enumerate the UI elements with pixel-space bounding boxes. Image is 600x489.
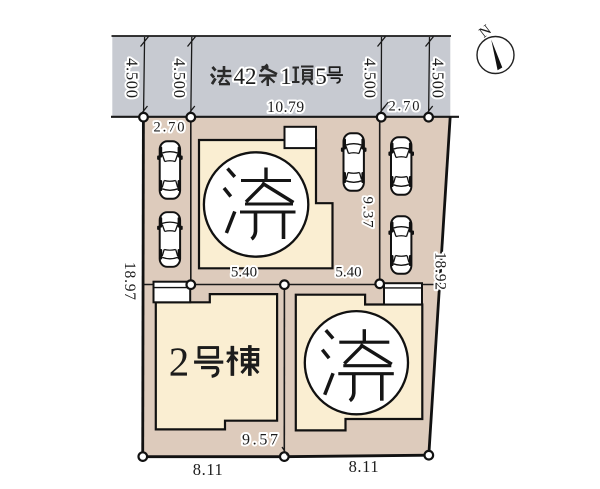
svg-text:2: 2	[169, 339, 190, 385]
svg-text:9.57: 9.57	[242, 432, 278, 449]
svg-text:18.92: 18.92	[432, 252, 449, 290]
svg-text:9.37: 9.37	[360, 197, 376, 229]
svg-text:42: 42	[234, 64, 257, 89]
svg-text:2.70: 2.70	[389, 99, 420, 115]
svg-text:18.97: 18.97	[121, 262, 138, 300]
svg-text:N: N	[476, 22, 495, 41]
svg-text:10.79: 10.79	[267, 99, 304, 116]
svg-text:4.500: 4.500	[361, 58, 380, 98]
svg-text:2.70: 2.70	[154, 120, 185, 136]
svg-text:1: 1	[280, 64, 292, 89]
svg-text:4.500: 4.500	[170, 58, 189, 98]
svg-text:5.40: 5.40	[231, 265, 257, 281]
svg-text:4.500: 4.500	[123, 58, 142, 98]
svg-text:4.500: 4.500	[429, 58, 448, 98]
svg-text:5: 5	[315, 64, 327, 89]
svg-text:5.40: 5.40	[335, 265, 361, 281]
svg-text:8.11: 8.11	[349, 457, 379, 476]
svg-text:8.11: 8.11	[193, 460, 223, 479]
